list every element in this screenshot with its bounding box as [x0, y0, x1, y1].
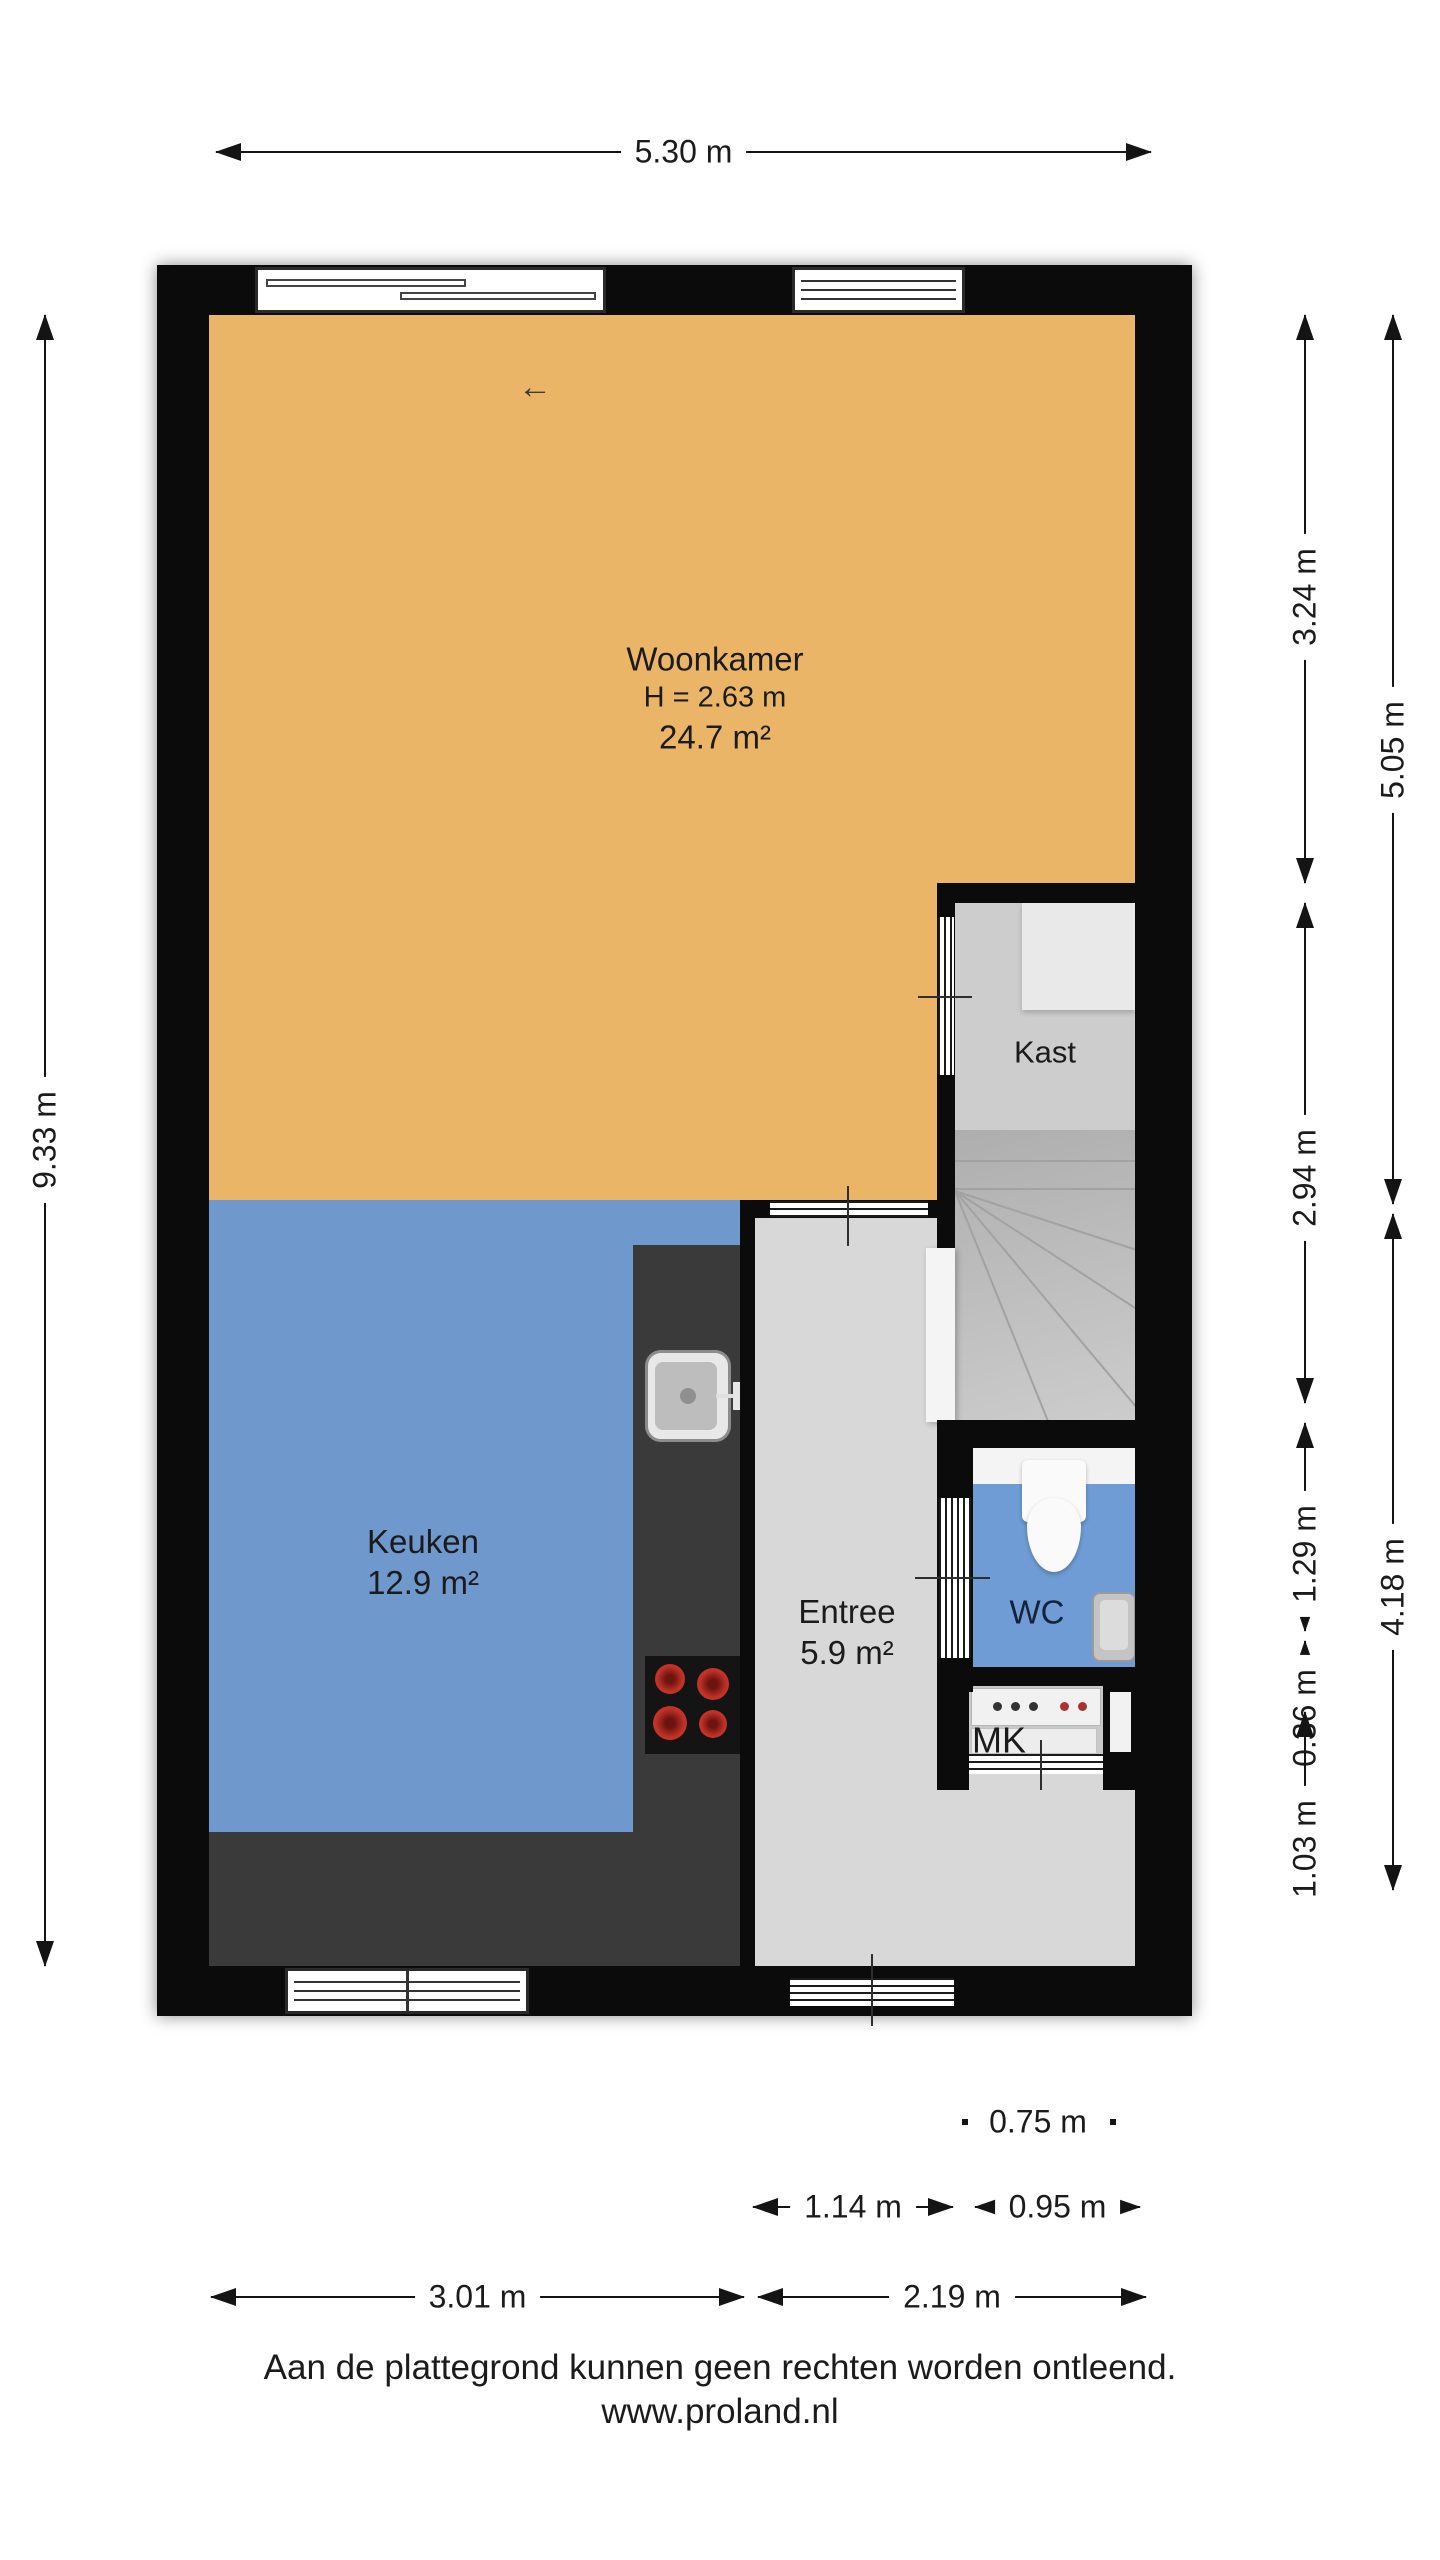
sliding-pane: [266, 279, 466, 287]
arrow-up-icon: [1384, 1213, 1402, 1239]
wall-left: [157, 265, 209, 2016]
dim-label: 2.94 m: [1287, 1115, 1324, 1241]
stove-burner: [699, 1710, 727, 1738]
woonkamer-floor-lower: [209, 883, 937, 1200]
room-ceiling-height: H = 2.63 m: [626, 680, 803, 716]
room-area: 12.9 m²: [367, 1562, 479, 1603]
dim-label: 3.01 m: [415, 2279, 541, 2316]
dim-bottom-0_75: 0.75 m: [989, 2104, 1087, 2141]
mk-label: MK: [972, 1718, 1026, 1763]
entree-door-axis: [847, 1186, 849, 1246]
mk-niche: [1110, 1692, 1131, 1752]
window-woonkamer-sliding: [255, 267, 606, 313]
wc-label: WC: [1010, 1591, 1065, 1632]
wall-kast-top: [937, 883, 1135, 903]
kast-shelf: [1022, 903, 1135, 1010]
slide-direction-arrow-icon: ←: [518, 368, 552, 407]
arrow-right-icon: [719, 2288, 745, 2306]
arrow-up-icon: [36, 314, 54, 340]
dim-label: 0.95 m: [995, 2189, 1121, 2226]
window-glass-line: [801, 289, 956, 291]
meter-dot: [1011, 1702, 1020, 1711]
dim-label: 5.05 m: [1375, 687, 1412, 813]
arrow-up-icon: [1296, 902, 1314, 928]
woonkamer-floor: [209, 315, 1135, 883]
window-glass-line: [294, 1981, 520, 1983]
arrow-down-icon: [1384, 1179, 1402, 1205]
stair-landing: [926, 1248, 955, 1422]
dim-label: 1.29 m: [1287, 1491, 1324, 1617]
sink-drain: [680, 1388, 696, 1404]
arrow-up-icon: [1296, 1422, 1314, 1448]
meter-dot: [993, 1702, 1002, 1711]
window-glass-line: [294, 1999, 520, 2001]
dim-label: 3.24 m: [1287, 534, 1324, 660]
stair-winder-line: [955, 1190, 1135, 1291]
arrow-left-icon: [210, 2288, 236, 2306]
room-name: Woonkamer: [626, 639, 803, 680]
arrow-right-icon: [1126, 143, 1152, 161]
dim-dot: [962, 2119, 968, 2125]
room-name: Entree: [798, 1591, 895, 1632]
stove-burner: [655, 1664, 685, 1694]
arrow-down-icon: [1296, 858, 1314, 884]
window-keuken: [285, 1968, 529, 2014]
dim-label: 4.18 m: [1375, 1524, 1412, 1650]
room-area: 5.9 m²: [798, 1632, 895, 1673]
wall-below-stairs: [937, 1420, 1135, 1448]
window-glass-line: [294, 1990, 520, 1992]
dim-label: 1.03 m: [1287, 1786, 1324, 1912]
staircase: [953, 1130, 1135, 1420]
kast-label: Kast: [1014, 1034, 1076, 1073]
wc-door-axis: [915, 1577, 990, 1579]
window-glass-line: [801, 298, 956, 300]
front-door-axis: [871, 1954, 873, 2026]
window-woonkamer-right: [792, 267, 965, 313]
entree-door: [770, 1201, 928, 1217]
window-glass-line: [801, 280, 956, 282]
arrow-up-icon: [1384, 314, 1402, 340]
website-text: www.proland.nl: [0, 2392, 1440, 2432]
arrow-right-icon: [928, 2198, 954, 2216]
wall-mk-left: [937, 1686, 969, 1790]
arrow-up-icon: [1296, 314, 1314, 340]
arrow-down-icon: [36, 1941, 54, 1967]
wc-basin-inner: [1100, 1600, 1128, 1650]
meter-dot-red: [1060, 1702, 1069, 1711]
mk-door-axis: [1040, 1740, 1042, 1790]
dim-label: 5.30 m: [621, 134, 747, 171]
stove-burner: [653, 1706, 687, 1740]
arrow-down-icon: [1296, 1378, 1314, 1404]
dim-label: 2.19 m: [889, 2279, 1015, 2316]
wall-keuken-entree: [740, 1218, 755, 1966]
meter-dot-red: [1078, 1702, 1087, 1711]
floorplan-page: ← Woonkamer H = 2.63 m 24.7 m² Keuken 12…: [0, 0, 1440, 2560]
wall-wc-bottom: [937, 1667, 1135, 1686]
entree-floor-east: [755, 1774, 1135, 1966]
kast-door-axis: [918, 996, 972, 998]
room-name: Keuken: [367, 1521, 479, 1562]
arrow-left-icon: [215, 143, 241, 161]
arrow-up-icon: [1296, 1711, 1314, 1737]
stair-winder-line: [954, 1190, 1135, 1420]
stove-burner: [697, 1668, 729, 1700]
arrow-right-icon: [1121, 2288, 1147, 2306]
room-area: 24.7 m²: [626, 716, 803, 757]
wall-right: [1135, 265, 1192, 2016]
dim-label: 9.33 m: [27, 1077, 64, 1203]
stair-step-line: [953, 1188, 1135, 1190]
sliding-pane: [400, 292, 596, 300]
stair-step-line: [953, 1160, 1135, 1162]
arrow-left-icon: [752, 2198, 778, 2216]
keuken-label: Keuken 12.9 m²: [367, 1521, 479, 1604]
kitchen-counter-bottom: [209, 1832, 743, 1966]
meter-dot: [1029, 1702, 1038, 1711]
stair-winder-line: [954, 1190, 1135, 1366]
dim-dot: [1110, 2119, 1116, 2125]
entree-label: Entree 5.9 m²: [798, 1591, 895, 1674]
woonkamer-label: Woonkamer H = 2.63 m 24.7 m²: [626, 639, 803, 758]
disclaimer-text: Aan de plattegrond kunnen geen rechten w…: [0, 2348, 1440, 2388]
dim-label: 1.14 m: [790, 2189, 916, 2226]
arrow-left-icon: [757, 2288, 783, 2306]
arrow-down-icon: [1384, 1865, 1402, 1891]
